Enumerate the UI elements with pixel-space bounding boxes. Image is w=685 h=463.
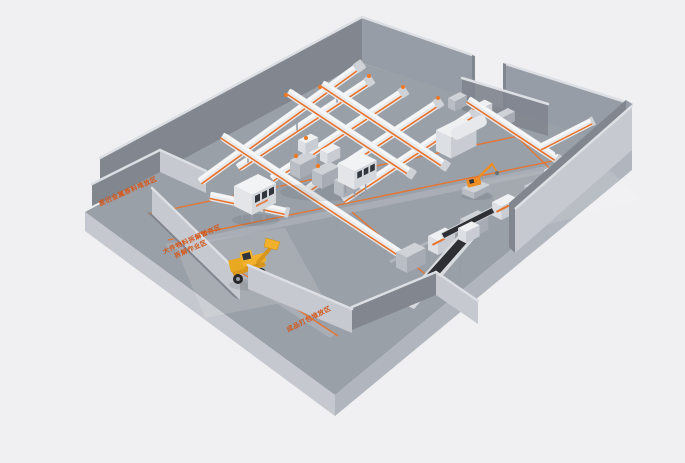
screenshot-root: 废旧金属原料堆放区 大件物料拆解暂存区 拆解作业区	[0, 0, 685, 463]
factory-render: 废旧金属原料堆放区 大件物料拆解暂存区 拆解作业区	[0, 0, 685, 463]
